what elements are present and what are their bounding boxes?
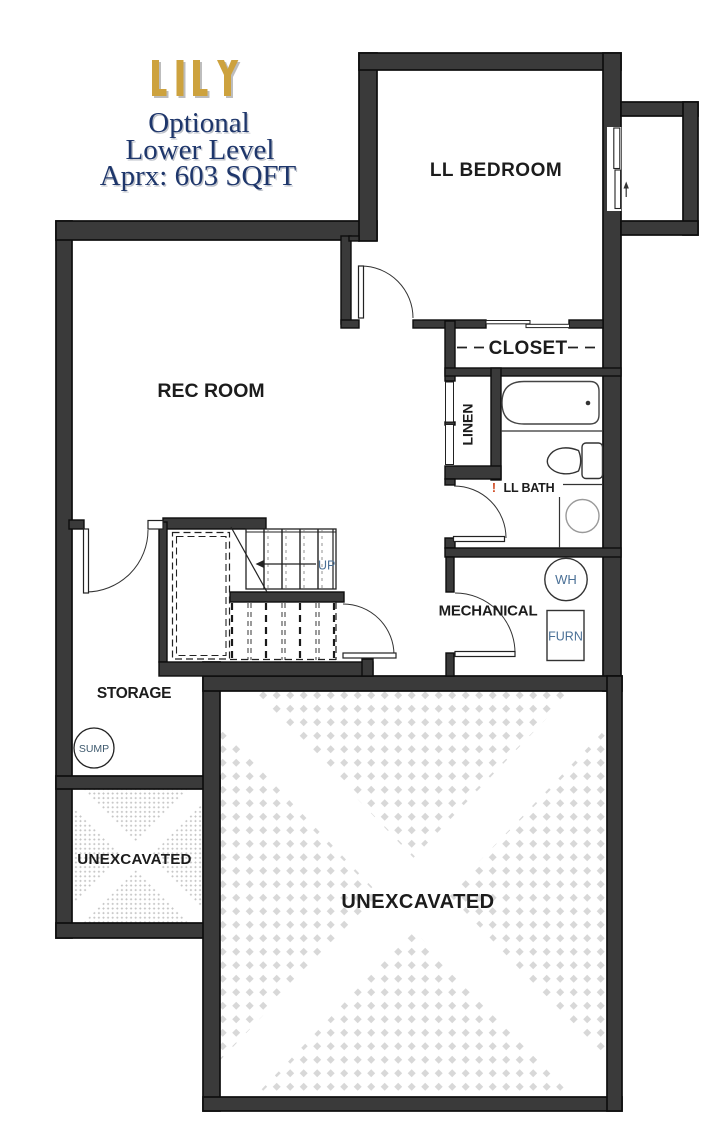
svg-text:Aprx: 603 SQFT: Aprx: 603 SQFT <box>100 160 297 192</box>
svg-text:LINEN: LINEN <box>460 404 476 446</box>
svg-text:MECHANICAL: MECHANICAL <box>439 603 538 620</box>
svg-text:STORAGE: STORAGE <box>97 685 171 702</box>
svg-text:LL BATH: LL BATH <box>504 481 555 495</box>
svg-text:WH: WH <box>555 572 577 587</box>
svg-text:SUMP: SUMP <box>79 743 109 755</box>
svg-text:UP: UP <box>318 559 335 573</box>
svg-text:UNEXCAVATED: UNEXCAVATED <box>341 891 494 913</box>
svg-text:LL BEDROOM: LL BEDROOM <box>430 160 562 181</box>
svg-text:CLOSET: CLOSET <box>489 338 568 359</box>
svg-text:REC ROOM: REC ROOM <box>157 380 264 402</box>
svg-text:UNEXCAVATED: UNEXCAVATED <box>77 851 191 868</box>
svg-text:!: ! <box>492 481 496 495</box>
svg-text:FURN: FURN <box>548 630 583 644</box>
